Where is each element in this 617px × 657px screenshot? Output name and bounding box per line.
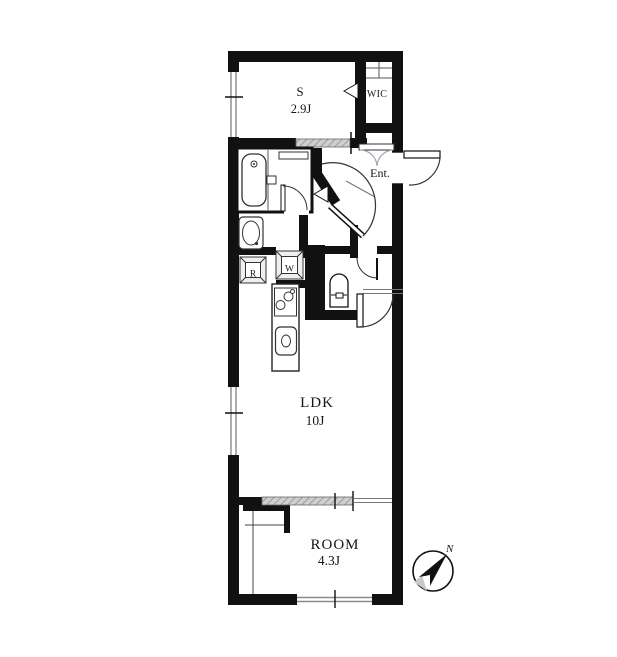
outer-walls	[228, 51, 403, 605]
ldk-label: LDK	[300, 395, 334, 411]
compass-north-label: N	[445, 543, 454, 555]
wic-opening-arrow	[344, 83, 358, 99]
closet-wall-horizontal	[243, 505, 290, 511]
floor-plan-canvas: R W	[0, 0, 617, 657]
room-label: ROOM	[310, 537, 359, 553]
bathtub	[242, 154, 266, 206]
toilet-bowl	[330, 274, 348, 307]
entrance-label: Ent.	[370, 166, 390, 180]
s-room-window	[225, 72, 243, 137]
sink-drain	[282, 335, 291, 347]
wall-left-c	[228, 455, 239, 605]
kitchen	[272, 284, 299, 371]
bath-counter	[279, 152, 308, 159]
toilet	[330, 258, 377, 307]
bath-control-panel	[267, 176, 276, 184]
room-size: 4.3J	[318, 553, 340, 568]
s-wic-partition	[355, 51, 366, 148]
bathroom	[237, 148, 312, 215]
shoe-cabinet-door-arc	[377, 150, 393, 166]
wic-label: WIC	[367, 89, 387, 100]
wic-south-wall	[366, 123, 403, 133]
entrance-door-gap	[392, 152, 403, 184]
closet-wall-stub	[284, 505, 290, 533]
wall-right-a	[392, 51, 403, 152]
ldk-door-leaf	[357, 294, 363, 327]
stove-burner	[276, 301, 285, 310]
wall-left-a	[228, 51, 239, 72]
compass: N	[413, 543, 454, 591]
refrigerator-space: R	[240, 257, 266, 283]
washbasin-bowl	[243, 221, 260, 245]
shoe-cabinet-door-arc	[360, 150, 377, 166]
washer-space: W	[276, 251, 303, 279]
plumbing-chase-wall	[305, 245, 325, 320]
ldk-room-sliding-door	[262, 497, 353, 505]
toilet-tank-notch	[336, 293, 343, 298]
s-room-sliding-door	[296, 139, 350, 147]
inner-walls	[228, 51, 403, 533]
wall-right-b	[392, 184, 403, 605]
wall-top	[228, 51, 403, 62]
bathroom-door-leaf	[281, 185, 285, 211]
ldk-window	[225, 387, 243, 455]
shoe-cabinet	[359, 144, 394, 150]
hall-door-leaf	[330, 206, 363, 236]
room-s-label: S	[296, 84, 303, 99]
ldk-size: 10J	[306, 413, 325, 428]
bathroom-door-gap	[284, 207, 309, 215]
wic-shelves	[366, 62, 392, 78]
entrance-door-arc	[409, 158, 440, 185]
entrance-step-line	[346, 181, 375, 197]
refrigerator-label: R	[250, 270, 257, 280]
washbasin-faucet	[255, 242, 258, 245]
ldk-room-divider-wall	[228, 497, 262, 505]
floor-plan: R W	[0, 0, 617, 657]
corridor-north-wall-east	[377, 246, 392, 254]
ldk-door-arc	[360, 294, 393, 327]
entrance-door-leaf	[404, 151, 440, 158]
washbasin	[239, 217, 263, 249]
room-closet-lines	[245, 511, 284, 594]
washer-label: W	[285, 265, 294, 275]
toilet-south-wall	[320, 310, 362, 320]
toilet-door-arc	[357, 258, 377, 278]
room-s-size: 2.9J	[291, 102, 312, 116]
bathtub-faucet-dot	[253, 163, 255, 165]
room-window	[297, 590, 372, 608]
stove-burner-small	[291, 290, 295, 294]
